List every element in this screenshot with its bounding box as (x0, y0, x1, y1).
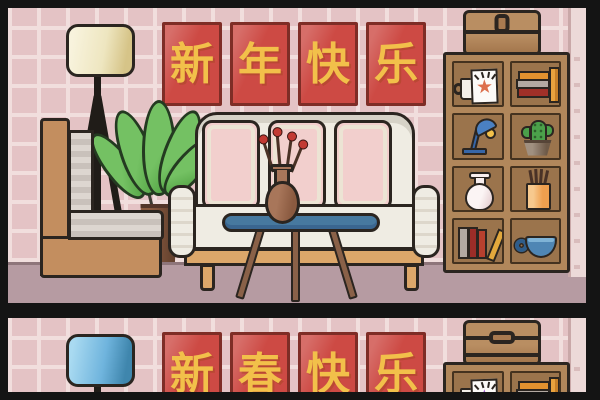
armchair-seat-cushion (68, 210, 164, 240)
sofa-armrest (412, 185, 440, 258)
sofa-leg (404, 264, 419, 291)
banner-1-char: 新 (165, 335, 219, 392)
shelf-cell-standing-books[interactable] (452, 218, 504, 264)
banner-2-char: 春 (233, 335, 287, 392)
suitcase[interactable] (463, 320, 541, 366)
banner-4-char: 乐 (369, 25, 423, 105)
lamp-shade[interactable] (66, 24, 135, 77)
shelf-cell-mug-star[interactable]: ★ (452, 61, 504, 107)
teacup (525, 236, 557, 258)
banner-2[interactable]: 春 (230, 332, 290, 392)
shelf-cell-white-vase[interactable] (452, 166, 504, 212)
banner-4[interactable]: 乐 (366, 332, 426, 392)
game-frame: 新 年 快 乐 (0, 0, 600, 400)
banner-2[interactable]: 年 (230, 22, 290, 106)
banner-3-char: 快 (301, 335, 355, 392)
banner-1-char: 新 (165, 25, 219, 105)
cactus-pot (524, 140, 552, 156)
bookshelf[interactable]: ★ (443, 362, 570, 392)
book (518, 71, 550, 81)
star-icon: ★ (473, 77, 497, 98)
desk-lamp-base (462, 148, 487, 155)
table-leg (291, 223, 300, 302)
panel-divider (8, 303, 586, 318)
banner-2-char: 年 (233, 25, 287, 105)
star-icon: ★ (473, 387, 497, 392)
sofa-pillow[interactable] (202, 120, 260, 210)
book-leaning (486, 228, 504, 262)
puzzle-panel-top[interactable]: 新 年 快 乐 (8, 8, 586, 303)
shelf-cell-teacup[interactable] (510, 218, 562, 264)
shelf-cell-incense-cup[interactable] (510, 166, 562, 212)
banner-4[interactable]: 乐 (366, 22, 426, 106)
wall-corner-strip (568, 318, 586, 392)
living-room-scene: 新 春 快 乐 (8, 318, 586, 392)
banner-3-char: 快 (301, 25, 355, 105)
wall-corner-strip (568, 8, 586, 277)
star-card[interactable]: ★ (470, 379, 498, 392)
suitcase-strap-line (465, 353, 539, 357)
banner-3[interactable]: 快 (298, 22, 358, 106)
puzzle-panel-bottom[interactable]: 新 春 快 乐 (8, 318, 586, 392)
star-card[interactable]: ★ (470, 69, 498, 105)
shelf-cell-cactus[interactable] (510, 113, 562, 159)
book-upright (549, 67, 560, 103)
book-upright (549, 377, 560, 392)
lamp-pole (94, 74, 101, 100)
shelf-cell-books-stacked[interactable] (510, 61, 562, 107)
suitcase-handle (495, 14, 510, 33)
armchair-base (40, 236, 162, 278)
sofa-leg (200, 264, 215, 291)
suitcase-handle (489, 331, 515, 344)
banner-3[interactable]: 快 (298, 332, 358, 392)
banner-4-char: 乐 (369, 335, 423, 392)
banner-1[interactable]: 新 (162, 332, 222, 392)
living-room-scene: 新 年 快 乐 (8, 8, 586, 303)
banner-1[interactable]: 新 (162, 22, 222, 106)
suitcase[interactable] (463, 10, 541, 56)
shelf-cell-books-stacked[interactable] (510, 371, 562, 392)
book (518, 381, 550, 391)
sofa-armrest (168, 185, 196, 258)
bookshelf[interactable]: ★ (443, 52, 570, 273)
incense-cup (526, 183, 551, 210)
book (477, 229, 487, 259)
shelf-cell-mug-star[interactable]: ★ (452, 371, 504, 392)
sofa-pillow[interactable] (334, 120, 392, 210)
white-vase (465, 183, 494, 211)
incense-stick (539, 168, 543, 183)
incense-stick (534, 168, 537, 183)
table-vase[interactable] (260, 124, 304, 224)
sofa-wood-trim (184, 248, 424, 266)
shelf-cell-desk-lamp[interactable] (452, 113, 504, 159)
vase-body (265, 181, 300, 224)
lamp-shade[interactable] (66, 334, 135, 387)
